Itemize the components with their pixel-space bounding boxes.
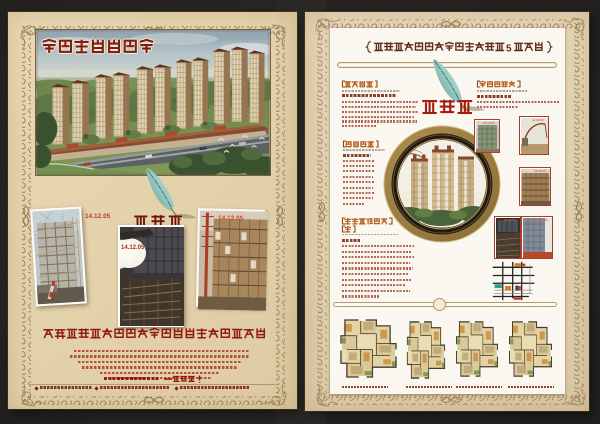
svg-text:5: 5: [506, 44, 512, 55]
